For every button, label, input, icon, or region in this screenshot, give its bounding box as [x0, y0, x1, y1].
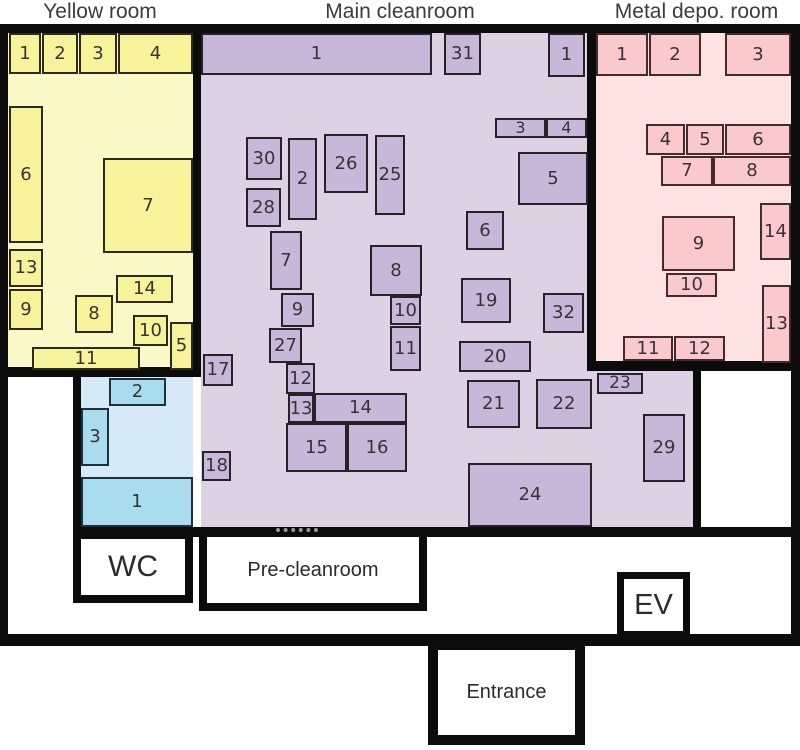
equipment-box-metal-3: 3 [725, 33, 791, 76]
equipment-box-yellow-7: 7 [103, 158, 193, 253]
wall-outer-left [0, 24, 8, 646]
equipment-box-metal-1: 1 [596, 33, 648, 76]
equipment-box-yellow-8: 8 [75, 295, 113, 333]
floorplan: 1234671391481051113113456302262528789101… [0, 0, 800, 750]
equipment-box-yellow-13: 13 [9, 249, 43, 287]
equipment-box-main-17: 17 [203, 354, 233, 386]
equipment-box-main-11: 11 [390, 326, 421, 371]
equipment-box-metal-2: 2 [649, 33, 701, 76]
wall-yellow-main [193, 24, 201, 377]
room-entrance: Entrance [428, 640, 585, 745]
equipment-box-main-31: 31 [444, 33, 481, 75]
equipment-box-main-26: 26 [324, 134, 368, 193]
equipment-box-metal-6: 6 [725, 124, 791, 155]
equipment-box-metal-12: 12 [674, 336, 725, 361]
equipment-box-main-14: 14 [314, 393, 407, 423]
equipment-box-main-32: 32 [543, 293, 584, 333]
equipment-box-main-28: 28 [246, 188, 281, 227]
equipment-box-main-4: 4 [546, 118, 587, 138]
equipment-box-main-16: 16 [347, 423, 407, 472]
equipment-box-metal-7: 7 [661, 156, 713, 186]
room-title-0: Yellow room [10, 0, 190, 24]
equipment-box-main-22: 22 [536, 379, 592, 429]
wall-annex-sideroom [693, 361, 701, 536]
equipment-box-metal-9: 9 [662, 216, 735, 271]
equipment-box-main-8: 8 [370, 245, 422, 296]
equipment-box-yellow-14: 14 [116, 275, 173, 303]
equipment-box-main-12: 12 [286, 363, 315, 394]
equipment-box-metal-14: 14 [760, 203, 791, 260]
equipment-box-metal-4: 4 [646, 124, 685, 155]
equipment-box-main-9: 9 [281, 293, 314, 327]
equipment-box-metal-8: 8 [713, 156, 791, 186]
side-room-right [701, 371, 791, 527]
equipment-box-metal-5: 5 [686, 124, 724, 155]
equipment-box-main-23: 23 [597, 373, 643, 394]
equipment-box-yellow-5: 5 [170, 322, 193, 370]
equipment-box-main-27: 27 [269, 328, 302, 363]
equipment-box-main-21: 21 [467, 380, 520, 428]
equipment-box-main-20: 20 [459, 341, 531, 372]
equipment-box-main-1: 1 [548, 33, 585, 77]
equipment-box-main-24: 24 [468, 463, 592, 527]
equipment-box-main-30: 30 [246, 137, 282, 180]
equipment-box-main-18: 18 [202, 451, 231, 481]
room-title-1: Main cleanroom [295, 0, 505, 24]
wall-outer-right [791, 24, 800, 646]
equipment-box-yellow-10: 10 [133, 315, 168, 346]
equipment-box-yellow-9: 9 [9, 289, 43, 330]
wall-blue-left [73, 367, 81, 537]
room-title-2: Metal depo. room [593, 0, 800, 24]
equipment-box-main-5: 5 [518, 152, 588, 205]
equipment-box-main-19: 19 [461, 278, 511, 323]
equipment-box-main-7: 7 [270, 231, 302, 290]
equipment-box-main-2: 2 [288, 138, 317, 220]
equipment-box-yellow-4: 4 [118, 33, 193, 74]
equipment-box-blue-2: 2 [109, 378, 166, 406]
wall-outer-top [0, 24, 800, 33]
room-ev: EV [617, 572, 690, 638]
equipment-box-main-10: 10 [390, 296, 421, 325]
equipment-box-main-3: 3 [495, 118, 546, 138]
equipment-box-main-15: 15 [286, 423, 347, 472]
equipment-box-metal-13: 13 [762, 285, 791, 363]
equipment-box-main-29: 29 [643, 414, 685, 482]
equipment-box-yellow-2: 2 [42, 33, 78, 74]
equipment-box-yellow-11: 11 [32, 347, 140, 370]
equipment-box-metal-11: 11 [623, 336, 673, 361]
equipment-box-yellow-1: 1 [9, 33, 41, 74]
precleanroom-door [276, 528, 318, 532]
equipment-box-blue-3: 3 [81, 408, 109, 466]
equipment-box-main-25: 25 [375, 135, 405, 215]
equipment-box-main-13: 13 [288, 394, 314, 423]
equipment-box-yellow-6: 6 [9, 106, 43, 243]
equipment-box-blue-1: 1 [81, 477, 193, 527]
wall-main-metal [587, 24, 596, 371]
room-pre-cleanroom: Pre-cleanroom [199, 529, 427, 611]
equipment-box-metal-10: 10 [666, 273, 717, 297]
room-wc: WC [73, 531, 193, 603]
equipment-box-main-1: 1 [201, 33, 432, 75]
equipment-box-main-6: 6 [466, 211, 504, 250]
equipment-box-yellow-3: 3 [79, 33, 117, 74]
